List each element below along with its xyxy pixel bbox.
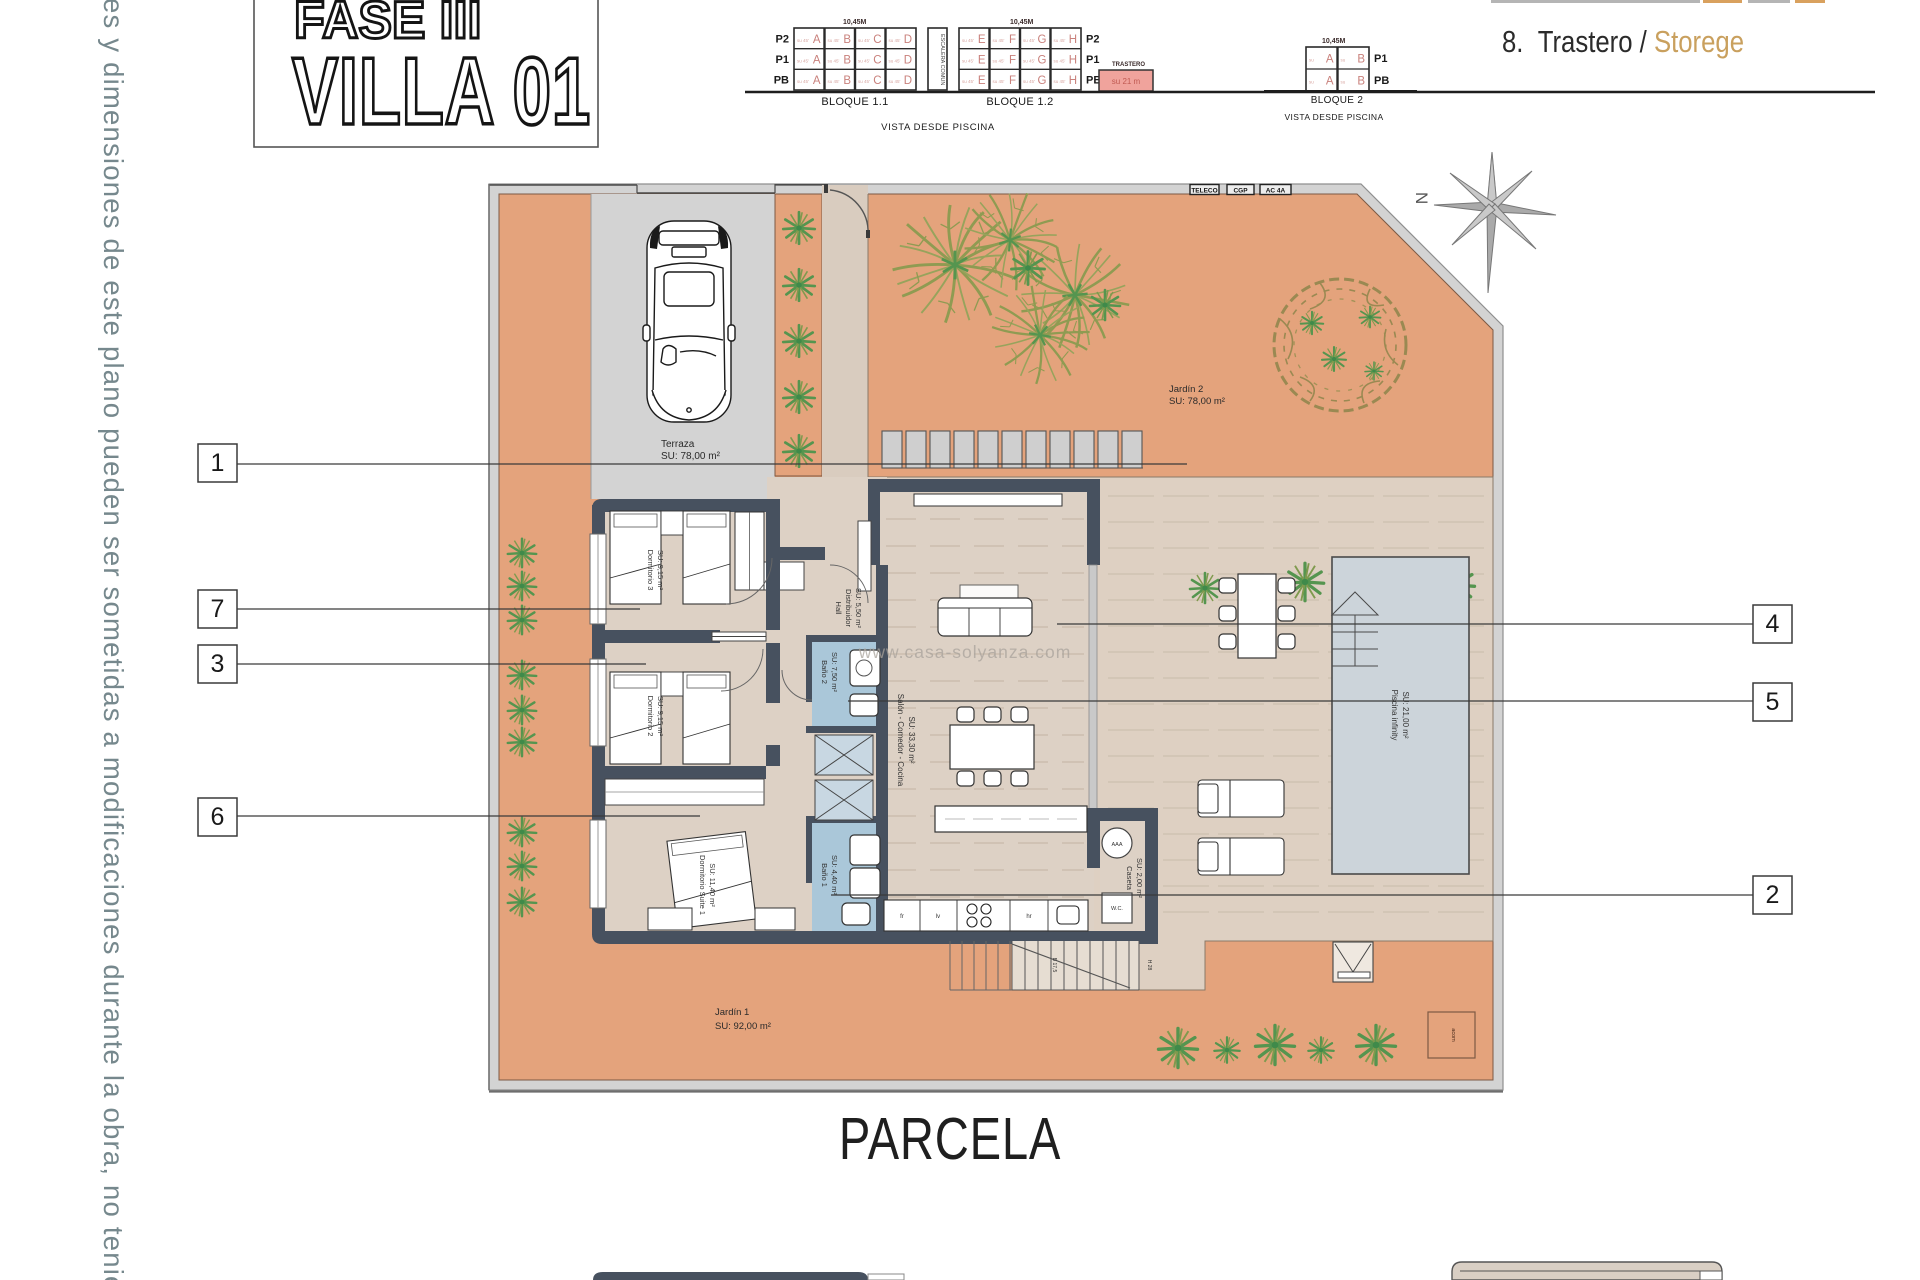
svg-text:BLOQUE 1.1: BLOQUE 1.1 xyxy=(821,96,888,108)
svg-text:su 45': su 45' xyxy=(962,79,974,84)
svg-text:G: G xyxy=(1038,34,1047,46)
svg-text:su 21 m: su 21 m xyxy=(1112,77,1141,86)
svg-text:su 45': su 45' xyxy=(1023,59,1035,64)
svg-text:Piscina infinity: Piscina infinity xyxy=(1390,690,1399,741)
svg-text:H 28: H 28 xyxy=(1146,960,1152,971)
svg-text:Jardín 1: Jardín 1 xyxy=(715,1007,749,1018)
svg-text:su: su xyxy=(1341,58,1346,63)
svg-text:su 45': su 45' xyxy=(962,38,974,43)
svg-text:B: B xyxy=(1357,54,1365,66)
svg-text:4: 4 xyxy=(1766,610,1780,638)
svg-text:AC 4A: AC 4A xyxy=(1266,188,1286,195)
svg-text:A: A xyxy=(813,55,821,67)
svg-text:H: H xyxy=(1069,55,1077,67)
svg-text:E: E xyxy=(978,75,986,87)
svg-text:lv: lv xyxy=(936,914,940,920)
svg-text:H: H xyxy=(1069,34,1077,46)
svg-text:SU: 4,40 m²: SU: 4,40 m² xyxy=(830,855,839,896)
svg-text:SU: 78,00 m²: SU: 78,00 m² xyxy=(1169,396,1225,407)
svg-text:10,45M: 10,45M xyxy=(1010,19,1034,26)
svg-text:SU: 11,40 m²: SU: 11,40 m² xyxy=(708,863,717,907)
svg-text:P1: P1 xyxy=(1086,54,1099,66)
svg-text:B 17,5: B 17,5 xyxy=(1051,958,1057,973)
svg-text:F: F xyxy=(1009,34,1016,46)
svg-text:SU: 33,30 m²: SU: 33,30 m² xyxy=(907,716,916,763)
svg-text:AAA: AAA xyxy=(1111,842,1122,848)
svg-text:H: H xyxy=(1069,75,1077,87)
svg-text:ESCALERA COMUN: ESCALERA COMUN xyxy=(939,34,945,85)
svg-text:G: G xyxy=(1038,75,1047,87)
svg-text:A: A xyxy=(1326,76,1334,88)
svg-text:es y dimensiones de este plano: es y dimensiones de este plano pueden se… xyxy=(98,0,129,1280)
svg-text:su 45': su 45' xyxy=(1054,79,1066,84)
svg-text:C: C xyxy=(873,75,881,87)
svg-text:1: 1 xyxy=(211,449,225,477)
svg-text:Hall: Hall xyxy=(834,602,843,615)
svg-text:SU: 5,50 m²: SU: 5,50 m² xyxy=(854,588,863,629)
svg-text:B: B xyxy=(843,34,851,46)
svg-text:SU: 21,00 m²: SU: 21,00 m² xyxy=(1401,691,1410,738)
svg-text:su 45': su 45' xyxy=(797,59,809,64)
svg-text:SU: 92,00 m²: SU: 92,00 m² xyxy=(715,1021,771,1032)
svg-text:B: B xyxy=(843,75,851,87)
svg-text:SU: 9,15 m²: SU: 9,15 m² xyxy=(656,696,665,737)
svg-text:F: F xyxy=(1009,55,1016,67)
svg-text:Baño 1: Baño 1 xyxy=(820,863,829,887)
svg-text:D: D xyxy=(904,34,912,46)
svg-text:P2: P2 xyxy=(776,33,789,45)
svg-text:acom: acom xyxy=(1450,1028,1456,1042)
svg-text:F: F xyxy=(1009,75,1016,87)
svg-text:A: A xyxy=(813,34,821,46)
svg-text:su 45': su 45' xyxy=(797,38,809,43)
svg-text:su 45': su 45' xyxy=(828,79,840,84)
svg-text:Terraza: Terraza xyxy=(661,439,695,450)
svg-text:Dormitorio Suite 1: Dormitorio Suite 1 xyxy=(698,855,707,915)
svg-text:P1: P1 xyxy=(776,54,789,66)
svg-text:su 45': su 45' xyxy=(889,38,901,43)
svg-text:D: D xyxy=(904,55,912,67)
svg-text:C: C xyxy=(873,55,881,67)
svg-text:su 45': su 45' xyxy=(797,79,809,84)
svg-text:P2: P2 xyxy=(1086,33,1099,45)
svg-text:P1: P1 xyxy=(1374,53,1387,65)
svg-text:Dormitorio 3: Dormitorio 3 xyxy=(646,550,655,591)
svg-text:su 45': su 45' xyxy=(962,59,974,64)
svg-text:TELECO: TELECO xyxy=(1191,188,1217,195)
svg-text:D: D xyxy=(904,75,912,87)
svg-text:su 45': su 45' xyxy=(889,59,901,64)
svg-text:su 45': su 45' xyxy=(993,38,1005,43)
svg-text:Baño 2: Baño 2 xyxy=(820,660,829,684)
svg-text:su 45': su 45' xyxy=(858,79,870,84)
svg-text:Jardín 2: Jardín 2 xyxy=(1169,384,1203,395)
svg-text:10,45M: 10,45M xyxy=(1322,38,1346,45)
svg-text:Salón - Comedor - Cocina: Salón - Comedor - Cocina xyxy=(896,694,905,787)
svg-text:hr: hr xyxy=(1026,914,1031,920)
svg-text:W.C.: W.C. xyxy=(1111,906,1123,912)
svg-text:su 45': su 45' xyxy=(1023,79,1035,84)
svg-text:su 45': su 45' xyxy=(1054,38,1066,43)
svg-text:www.casa-solyanza.com: www.casa-solyanza.com xyxy=(858,642,1072,662)
svg-text:VISTA DESDE PISCINA: VISTA DESDE PISCINA xyxy=(1284,112,1383,122)
svg-text:6: 6 xyxy=(211,803,225,831)
svg-text:su 45': su 45' xyxy=(828,59,840,64)
svg-text:G: G xyxy=(1038,55,1047,67)
svg-text:fr: fr xyxy=(900,914,904,920)
svg-text:PARCELA: PARCELA xyxy=(839,1107,1061,1172)
svg-text:A: A xyxy=(1326,54,1334,66)
svg-text:B: B xyxy=(843,55,851,67)
svg-text:C: C xyxy=(873,34,881,46)
svg-text:PB: PB xyxy=(1374,75,1389,87)
svg-text:2: 2 xyxy=(1766,881,1780,909)
svg-text:su 45': su 45' xyxy=(1054,59,1066,64)
svg-text:A: A xyxy=(813,75,821,87)
svg-text:su 45': su 45' xyxy=(828,38,840,43)
svg-text:su 45': su 45' xyxy=(993,59,1005,64)
svg-text:SU: 7,50 m²: SU: 7,50 m² xyxy=(830,652,839,693)
svg-text:su 45': su 45' xyxy=(993,79,1005,84)
svg-text:PB: PB xyxy=(774,75,789,87)
svg-text:10,45M: 10,45M xyxy=(843,19,867,26)
svg-text:E: E xyxy=(978,34,986,46)
svg-text:E: E xyxy=(978,55,986,67)
svg-text:B: B xyxy=(1357,76,1365,88)
svg-text:Distribuidor: Distribuidor xyxy=(844,589,853,627)
svg-text:BLOQUE 1.2: BLOQUE 1.2 xyxy=(986,96,1053,108)
svg-text:TRASTERO: TRASTERO xyxy=(1112,62,1145,68)
svg-text:BLOQUE 2: BLOQUE 2 xyxy=(1311,95,1364,106)
svg-text:8. Trastero / Storege: 8. Trastero / Storege xyxy=(1502,25,1744,60)
svg-text:7: 7 xyxy=(211,595,225,623)
svg-text:su 45': su 45' xyxy=(889,79,901,84)
svg-text:VILLA 01: VILLA 01 xyxy=(292,37,591,145)
svg-text:N: N xyxy=(1412,192,1431,204)
svg-text:su: su xyxy=(1341,80,1346,85)
svg-text:su: su xyxy=(1309,58,1314,63)
svg-text:su 45': su 45' xyxy=(858,59,870,64)
svg-text:su: su xyxy=(1309,80,1314,85)
svg-text:su 45': su 45' xyxy=(1023,38,1035,43)
svg-text:Caseta: Caseta xyxy=(1125,866,1134,891)
svg-text:su 45': su 45' xyxy=(858,38,870,43)
svg-text:VISTA DESDE PISCINA: VISTA DESDE PISCINA xyxy=(881,122,995,133)
svg-text:SU: 78,00 m²: SU: 78,00 m² xyxy=(661,451,721,462)
svg-text:CGP: CGP xyxy=(1233,188,1248,195)
svg-text:SU: 2,00 m²: SU: 2,00 m² xyxy=(1135,858,1144,899)
svg-text:SU: 9,15 m²: SU: 9,15 m² xyxy=(656,550,665,591)
svg-text:3: 3 xyxy=(211,650,225,678)
svg-text:5: 5 xyxy=(1766,688,1780,716)
svg-text:Dormitorio 2: Dormitorio 2 xyxy=(646,696,655,737)
